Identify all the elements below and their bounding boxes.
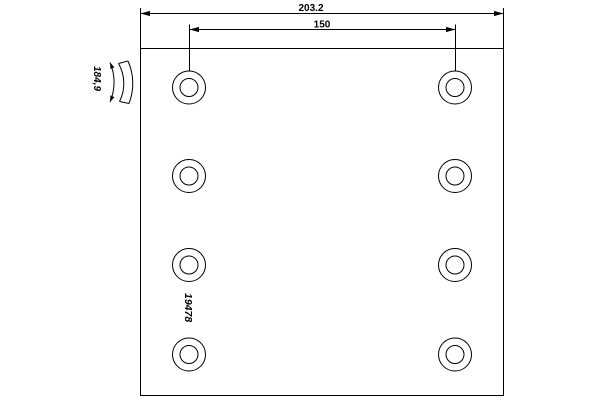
part-number: 19478 (182, 293, 194, 322)
hole-outer-circle (173, 71, 206, 104)
rivet-hole (439, 71, 472, 104)
rivet-hole (173, 71, 206, 104)
overall-width-value: 203.2 (298, 3, 323, 14)
hole-inner-circle (446, 167, 464, 185)
lining-plate-outline (141, 49, 504, 396)
hole-outer-circle (173, 160, 206, 193)
rivet-hole (439, 160, 472, 193)
lining-section-outer-arc (128, 61, 133, 104)
arc-arrowhead-bottom-icon (110, 95, 114, 102)
lining-section-bottom-cap (120, 102, 130, 104)
hole-spacing-value: 150 (314, 20, 331, 31)
hole-outer-circle (439, 160, 472, 193)
rivet-holes (173, 71, 472, 371)
hole-inner-circle (446, 346, 464, 364)
drawing-canvas: 203.2 150 184,9 (0, 0, 600, 400)
rivet-hole (439, 249, 472, 282)
hole-inner-circle (446, 256, 464, 274)
rivet-hole (173, 160, 206, 193)
radius-annotation: 184,9 (91, 61, 133, 104)
hole-inner-circle (446, 79, 464, 97)
hole-inner-circle (180, 256, 198, 274)
hole-outer-circle (439, 249, 472, 282)
arrowhead-left-icon (190, 27, 200, 32)
arrowhead-left-icon (141, 11, 151, 16)
lining-section-top-cap (119, 61, 129, 64)
radius-value: 184,9 (91, 66, 102, 91)
rivet-hole (173, 249, 206, 282)
hole-outer-circle (173, 249, 206, 282)
hole-outer-circle (439, 338, 472, 371)
arrowhead-right-icon (446, 27, 456, 32)
rivet-hole (173, 338, 206, 371)
arc-arrowhead-top-icon (110, 63, 114, 70)
dimension-hole-spacing: 150 (190, 20, 456, 72)
part-number-value: 19478 (182, 293, 194, 322)
part-outline (141, 49, 504, 396)
brake-lining-technical-drawing: 203.2 150 184,9 (0, 0, 600, 400)
lining-section-inner-arc (119, 64, 124, 102)
rivet-hole (439, 338, 472, 371)
hole-outer-circle (173, 338, 206, 371)
hole-inner-circle (180, 167, 198, 185)
hole-outer-circle (439, 71, 472, 104)
hole-inner-circle (180, 79, 198, 97)
arrowhead-right-icon (494, 11, 504, 16)
hole-inner-circle (180, 346, 198, 364)
